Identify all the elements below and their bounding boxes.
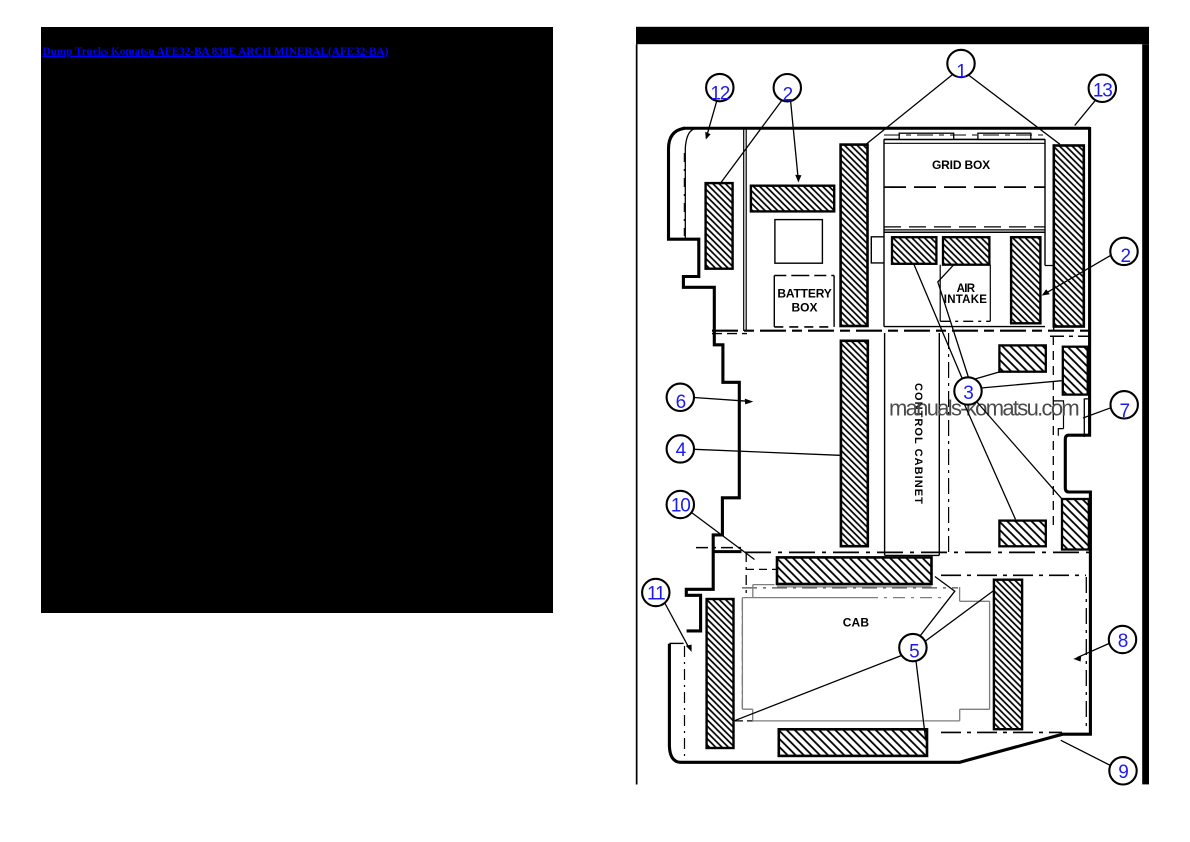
svg-text:2: 2: [1120, 246, 1130, 267]
svg-text:3: 3: [963, 383, 973, 404]
svg-text:10: 10: [671, 496, 690, 517]
svg-text:7: 7: [1119, 401, 1129, 422]
svg-text:2: 2: [783, 85, 793, 106]
svg-text:5: 5: [909, 642, 919, 663]
svg-text:4: 4: [676, 440, 687, 461]
svg-text:manuals-komatsu.com: manuals-komatsu.com: [889, 396, 1078, 421]
svg-text:9: 9: [1118, 762, 1128, 783]
svg-text:12: 12: [710, 83, 729, 104]
svg-text:CAB: CAB: [843, 616, 870, 630]
svg-text:BOX: BOX: [791, 301, 817, 315]
svg-text:INTAKE: INTAKE: [944, 294, 988, 306]
svg-text:8: 8: [1118, 631, 1128, 652]
svg-text:11: 11: [647, 584, 665, 605]
svg-text:1: 1: [956, 62, 966, 83]
svg-text:13: 13: [1093, 80, 1112, 101]
svg-text:6: 6: [676, 392, 686, 413]
svg-text:GRID BOX: GRID BOX: [932, 158, 990, 172]
svg-text:BATTERY: BATTERY: [777, 286, 831, 300]
